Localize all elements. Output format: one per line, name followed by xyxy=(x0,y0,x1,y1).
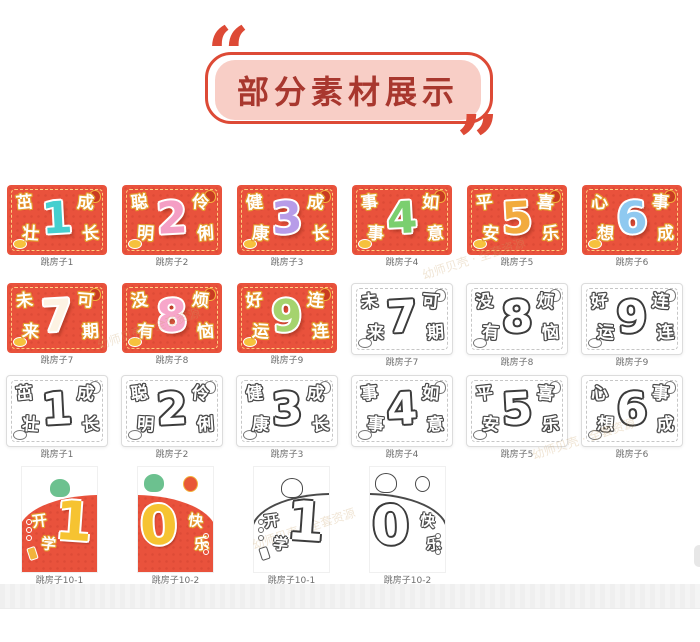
material-card: 平 安 5 喜 乐 跳房子5 xyxy=(467,185,567,268)
card-image: 心 想 6 事 成 xyxy=(582,185,682,255)
card-label: 跳房子8 xyxy=(501,359,534,368)
material-card: 未 来 7 可 期 跳房子7 xyxy=(352,283,452,368)
card-char-bottom-right: 成 xyxy=(656,225,674,243)
card-image: 事 事 4 如 意 xyxy=(351,375,453,447)
card-image: 平 安 5 喜 乐 xyxy=(467,185,567,255)
card-image: 未 来 7 可 期 xyxy=(7,283,107,353)
card-char-bottom-left: 运 xyxy=(596,324,614,342)
card-image: 没 有 8 烦 恼 xyxy=(122,283,222,353)
card-number: 2 xyxy=(156,196,189,242)
card-number: 9 xyxy=(271,294,304,340)
card-number: 4 xyxy=(386,387,419,433)
card-char-bottom-right: 长 xyxy=(81,225,99,243)
material-card: 没 有 8 烦 恼 跳房子8 xyxy=(467,283,567,368)
material-card: 健 康 3 成 长 跳房子3 xyxy=(237,185,337,268)
material-card: 茁 壮 1 成 长 跳房子1 xyxy=(7,185,107,268)
card-image: 心 想 6 事 成 xyxy=(581,375,683,447)
card-number: 1 xyxy=(41,387,74,433)
card-char-bottom-left: 康 xyxy=(251,225,269,243)
card-number: 4 xyxy=(386,196,419,242)
material-card: 聪 明 2 伶 俐 跳房子2 xyxy=(122,185,222,268)
card-number: 8 xyxy=(156,294,189,340)
scrollbar-thumb[interactable] xyxy=(694,545,700,567)
dot-deco xyxy=(203,533,209,555)
card-char-bottom-right: 成 xyxy=(656,416,674,434)
dinosaur-icon xyxy=(143,473,165,493)
card-label: 跳房子5 xyxy=(501,451,534,460)
material-card: 茁 壮 1 成 长 跳房子1 xyxy=(7,375,107,460)
card-char-2: 学 xyxy=(272,536,288,552)
card-char-bottom-right: 长 xyxy=(311,225,329,243)
card-char-top-left: 事 xyxy=(360,385,379,404)
card-label: 跳房子9 xyxy=(271,357,304,366)
card-image: 1 开 学 xyxy=(21,466,98,573)
card-char-top-left: 茁 xyxy=(15,194,34,213)
card-number: 9 xyxy=(616,295,649,341)
card-image: 健 康 3 成 长 xyxy=(236,375,338,447)
card-char-bottom-left: 事 xyxy=(366,416,384,434)
card-char-bottom-left: 壮 xyxy=(21,416,39,434)
card-char-top-right: 伶 xyxy=(191,385,209,403)
card-char-bottom-left: 有 xyxy=(481,324,499,342)
card-char-top-left: 健 xyxy=(245,385,264,404)
card-label: 跳房子3 xyxy=(271,259,304,268)
card-char-bottom-left: 来 xyxy=(366,324,384,342)
card-char-top-left: 平 xyxy=(475,194,494,213)
card-char-1: 开 xyxy=(263,513,280,530)
card-char-top-right: 事 xyxy=(651,385,669,403)
card-char-top-right: 如 xyxy=(421,194,439,212)
material-card: 好 运 9 连 连 跳房子9 xyxy=(237,283,337,368)
card-label: 跳房子5 xyxy=(501,259,534,268)
card-char-top-right: 成 xyxy=(306,194,324,212)
card-char-bottom-left: 有 xyxy=(136,323,154,341)
card-char-top-left: 平 xyxy=(475,385,494,404)
card-label: 跳房子4 xyxy=(386,259,419,268)
card-char-bottom-right: 恼 xyxy=(196,323,214,341)
dot-deco xyxy=(435,533,441,555)
card-char-top-right: 喜 xyxy=(536,194,554,212)
material-card-ten: 1 开 学 跳房子10-1 xyxy=(254,466,329,586)
material-card: 事 事 4 如 意 跳房子4 xyxy=(352,375,452,460)
card-label: 跳房子6 xyxy=(616,451,649,460)
title-pink-fill: 部分素材展示 xyxy=(215,60,481,120)
card-char-bottom-right: 期 xyxy=(426,324,444,342)
card-label: 跳房子1 xyxy=(41,259,74,268)
card-char-top-left: 心 xyxy=(590,385,609,404)
material-card: 心 想 6 事 成 跳房子6 xyxy=(582,185,682,268)
card-number: 7 xyxy=(386,295,419,341)
card-label: 跳房子3 xyxy=(271,451,304,460)
material-card: 好 运 9 连 连 跳房子9 xyxy=(582,283,682,368)
card-image: 0 快 乐 xyxy=(137,466,214,573)
card-image: 聪 明 2 伶 俐 xyxy=(122,185,222,255)
card-image: 茁 壮 1 成 长 xyxy=(7,185,107,255)
card-label: 跳房子9 xyxy=(616,359,649,368)
card-row-4-tens: 1 开 学 跳房子10-1 0 快 乐 跳房子10-2 1 开 学 xyxy=(22,466,445,586)
card-char-bottom-left: 明 xyxy=(136,416,154,434)
card-char-top-right: 成 xyxy=(76,385,94,403)
card-char-1: 开 xyxy=(31,513,48,530)
card-label: 跳房子4 xyxy=(386,451,419,460)
card-label: 跳房子7 xyxy=(386,359,419,368)
card-char-top-right: 伶 xyxy=(191,194,209,212)
material-card: 聪 明 2 伶 俐 跳房子2 xyxy=(122,375,222,460)
card-char-top-left: 未 xyxy=(15,292,34,311)
page-title: 部分素材展示 xyxy=(237,67,459,113)
card-number: 1 xyxy=(286,494,327,550)
card-row-1: 茁 壮 1 成 长 跳房子1 聪 明 2 伶 俐 跳房子2 健 康 3 成 长 xyxy=(7,185,682,268)
card-char-top-left: 茁 xyxy=(15,385,34,404)
card-label: 跳房子7 xyxy=(41,357,74,366)
card-char-top-left: 事 xyxy=(360,194,379,213)
material-card: 平 安 5 喜 乐 跳房子5 xyxy=(467,375,567,460)
card-char-top-left: 健 xyxy=(245,194,264,213)
card-label: 跳房子8 xyxy=(156,357,189,366)
section-title-badge: 部分素材展示 “ ” xyxy=(205,52,493,124)
card-image: 1 开 学 xyxy=(253,466,330,573)
card-char-1: 快 xyxy=(419,513,436,530)
card-number: 1 xyxy=(41,196,74,242)
material-card: 心 想 6 事 成 跳房子6 xyxy=(582,375,682,460)
card-char-top-left: 未 xyxy=(360,293,379,312)
dot-deco xyxy=(26,519,32,541)
card-char-top-right: 可 xyxy=(421,293,439,311)
card-char-top-right: 成 xyxy=(76,194,94,212)
card-number: 0 xyxy=(139,498,179,554)
card-label: 跳房子1 xyxy=(41,451,74,460)
card-image: 好 运 9 连 连 xyxy=(581,283,683,355)
card-char-bottom-right: 恼 xyxy=(541,324,559,342)
card-char-top-right: 事 xyxy=(651,194,669,212)
card-char-bottom-right: 乐 xyxy=(541,416,559,434)
card-number: 8 xyxy=(501,295,534,341)
material-card: 健 康 3 成 长 跳房子3 xyxy=(237,375,337,460)
card-char-bottom-right: 长 xyxy=(311,416,329,434)
card-char-bottom-right: 意 xyxy=(426,416,444,434)
card-number: 6 xyxy=(616,196,649,242)
card-char-top-left: 没 xyxy=(475,293,494,312)
card-char-top-right: 可 xyxy=(76,292,94,310)
card-char-top-left: 好 xyxy=(245,292,264,311)
card-char-bottom-left: 想 xyxy=(596,416,614,434)
card-char-bottom-left: 来 xyxy=(21,323,39,341)
card-char-top-left: 没 xyxy=(130,292,149,311)
card-number: 0 xyxy=(371,498,411,554)
card-char-bottom-right: 连 xyxy=(311,323,329,341)
material-card: 事 事 4 如 意 跳房子4 xyxy=(352,185,452,268)
card-char-bottom-left: 壮 xyxy=(21,225,39,243)
card-char-bottom-left: 运 xyxy=(251,323,269,341)
card-number: 5 xyxy=(501,387,534,433)
card-char-bottom-left: 康 xyxy=(251,416,269,434)
card-number: 2 xyxy=(156,387,189,433)
card-number: 1 xyxy=(54,494,95,550)
dot-deco xyxy=(258,519,264,541)
card-label: 跳房子2 xyxy=(156,451,189,460)
card-char-top-left: 聪 xyxy=(130,194,149,213)
card-char-top-right: 如 xyxy=(421,385,439,403)
card-char-bottom-right: 俐 xyxy=(196,416,214,434)
card-char-top-right: 成 xyxy=(306,385,324,403)
card-char-top-left: 心 xyxy=(590,194,609,213)
close-quote-icon: ” xyxy=(456,106,499,180)
card-char-bottom-left: 安 xyxy=(481,416,499,434)
card-image: 事 事 4 如 意 xyxy=(352,185,452,255)
card-char-bottom-left: 想 xyxy=(596,225,614,243)
card-number: 3 xyxy=(271,387,304,433)
card-image: 平 安 5 喜 乐 xyxy=(466,375,568,447)
card-image: 健 康 3 成 长 xyxy=(237,185,337,255)
card-char-bottom-left: 安 xyxy=(481,225,499,243)
card-char-bottom-right: 俐 xyxy=(196,225,214,243)
card-number: 6 xyxy=(616,387,649,433)
material-card: 没 有 8 烦 恼 跳房子8 xyxy=(122,283,222,368)
card-row-2: 未 来 7 可 期 跳房子7 没 有 8 烦 恼 跳房子8 好 运 9 连 连 xyxy=(7,283,682,368)
open-quote-icon: “ xyxy=(207,18,250,92)
material-card-ten: 0 快 乐 跳房子10-2 xyxy=(370,466,445,586)
card-image: 聪 明 2 伶 俐 xyxy=(121,375,223,447)
card-char-bottom-left: 事 xyxy=(366,225,384,243)
material-card-ten: 1 开 学 跳房子10-1 xyxy=(22,466,97,586)
card-char-bottom-right: 期 xyxy=(81,323,99,341)
card-char-top-right: 连 xyxy=(306,292,324,310)
card-char-top-right: 连 xyxy=(651,293,669,311)
page: 部分素材展示 “ ” 茁 壮 1 成 长 跳房子1 聪 明 2 伶 俐 跳房子2 xyxy=(0,0,700,642)
card-char-top-right: 烦 xyxy=(191,292,209,310)
card-image: 0 快 乐 xyxy=(369,466,446,573)
card-char-bottom-left: 明 xyxy=(136,225,154,243)
card-char-bottom-right: 乐 xyxy=(541,225,559,243)
footer-band xyxy=(0,584,700,609)
card-char-top-left: 好 xyxy=(590,293,609,312)
card-label: 跳房子6 xyxy=(616,259,649,268)
card-number: 7 xyxy=(41,294,74,340)
card-char-top-right: 烦 xyxy=(536,293,554,311)
card-char-bottom-right: 连 xyxy=(656,324,674,342)
card-char-1: 快 xyxy=(187,513,204,530)
card-number: 5 xyxy=(501,196,534,242)
card-number: 3 xyxy=(271,196,304,242)
card-char-2: 学 xyxy=(40,536,56,552)
card-row-3: 茁 壮 1 成 长 跳房子1 聪 明 2 伶 俐 跳房子2 健 康 3 成 长 xyxy=(7,375,682,460)
card-char-bottom-right: 长 xyxy=(81,416,99,434)
card-char-bottom-right: 意 xyxy=(426,225,444,243)
card-image: 未 来 7 可 期 xyxy=(351,283,453,355)
card-char-top-right: 喜 xyxy=(536,385,554,403)
card-label: 跳房子2 xyxy=(156,259,189,268)
lantern-icon xyxy=(183,476,198,492)
lantern-icon xyxy=(415,476,430,492)
card-char-top-left: 聪 xyxy=(130,385,149,404)
card-image: 没 有 8 烦 恼 xyxy=(466,283,568,355)
card-image: 好 运 9 连 连 xyxy=(237,283,337,353)
card-image: 茁 壮 1 成 长 xyxy=(6,375,108,447)
material-card: 未 来 7 可 期 跳房子7 xyxy=(7,283,107,368)
dinosaur-icon xyxy=(375,473,397,493)
material-card-ten: 0 快 乐 跳房子10-2 xyxy=(138,466,213,586)
